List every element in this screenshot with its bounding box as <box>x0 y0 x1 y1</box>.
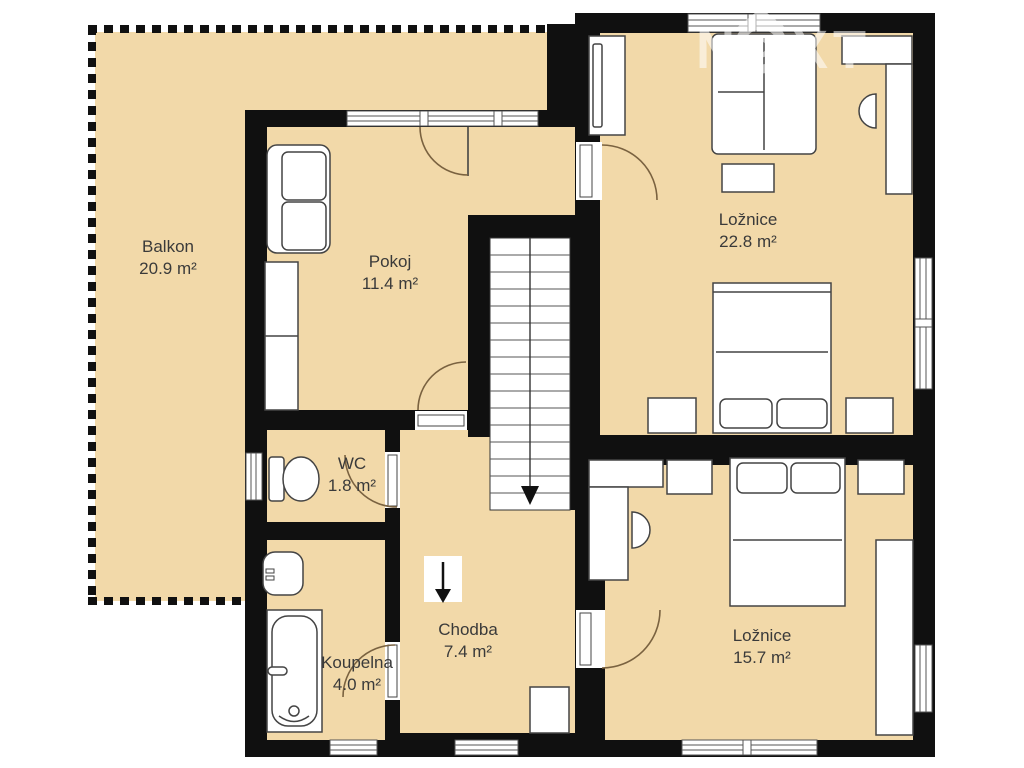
room-name: Ložnice <box>733 625 792 647</box>
tv-board <box>589 36 625 135</box>
room-area: 11.4 m² <box>362 273 418 295</box>
chodba-bottom-window <box>455 740 518 755</box>
shelf-cabinet <box>265 262 298 410</box>
sink <box>263 552 303 595</box>
watermark-letters-xt: XT <box>792 20 871 80</box>
nightstand <box>648 398 696 433</box>
room-label-loznice-bottom: Ložnice 15.7 m² <box>733 625 792 669</box>
coffee-table <box>722 164 774 192</box>
room-area: 22.8 m² <box>719 231 778 253</box>
toilet <box>269 457 319 501</box>
room-name: Ložnice <box>719 209 778 231</box>
room-name: Koupelna <box>321 652 393 674</box>
room-label-pokoj: Pokoj 11.4 m² <box>362 251 418 295</box>
room-area: 7.4 m² <box>438 641 498 663</box>
room-area: 20.9 m² <box>139 258 197 280</box>
loznice-bottom-right-window <box>915 645 932 712</box>
room-name: WC <box>328 453 376 475</box>
nightstand <box>667 460 712 494</box>
wall-corner-connector <box>547 24 578 114</box>
bathtub <box>267 610 322 732</box>
room-label-koupelna: Koupelna 4.0 m² <box>321 652 393 696</box>
pokoj-top-window <box>347 111 538 126</box>
room-label-balkon: Balkon 20.9 m² <box>139 236 197 280</box>
nightstand <box>846 398 893 433</box>
koupelna-bottom-window <box>330 740 377 755</box>
room-area: 4.0 m² <box>321 674 393 696</box>
wc-left-window <box>246 453 262 500</box>
room-name: Chodba <box>438 619 498 641</box>
watermark-letter-n: N <box>696 20 735 80</box>
room-area: 15.7 m² <box>733 647 792 669</box>
room-area: 1.8 m² <box>328 475 376 497</box>
room-name: Pokoj <box>362 251 418 273</box>
room-label-chodba: Chodba 7.4 m² <box>438 619 498 663</box>
room-label-loznice-top: Ložnice 22.8 m² <box>719 209 778 253</box>
staircase <box>490 238 570 510</box>
armchair <box>267 145 330 253</box>
room-label-wc: WC 1.8 m² <box>328 453 376 497</box>
bed-bottom <box>730 458 845 606</box>
wardrobe <box>876 540 913 735</box>
floor-plan-drawing: N XT <box>0 0 1024 768</box>
bed-top <box>713 283 831 433</box>
loznice-bottom-window <box>682 740 817 755</box>
loznice-top-right-window <box>915 258 932 389</box>
hall-down-arrow-icon <box>424 556 462 603</box>
room-name: Balkon <box>139 236 197 258</box>
hall-cabinet <box>530 687 569 733</box>
nightstand <box>858 460 904 494</box>
floor-plan: N XT Balkon 20.9 m² Pokoj 11.4 m² Ložnic… <box>0 0 1024 768</box>
